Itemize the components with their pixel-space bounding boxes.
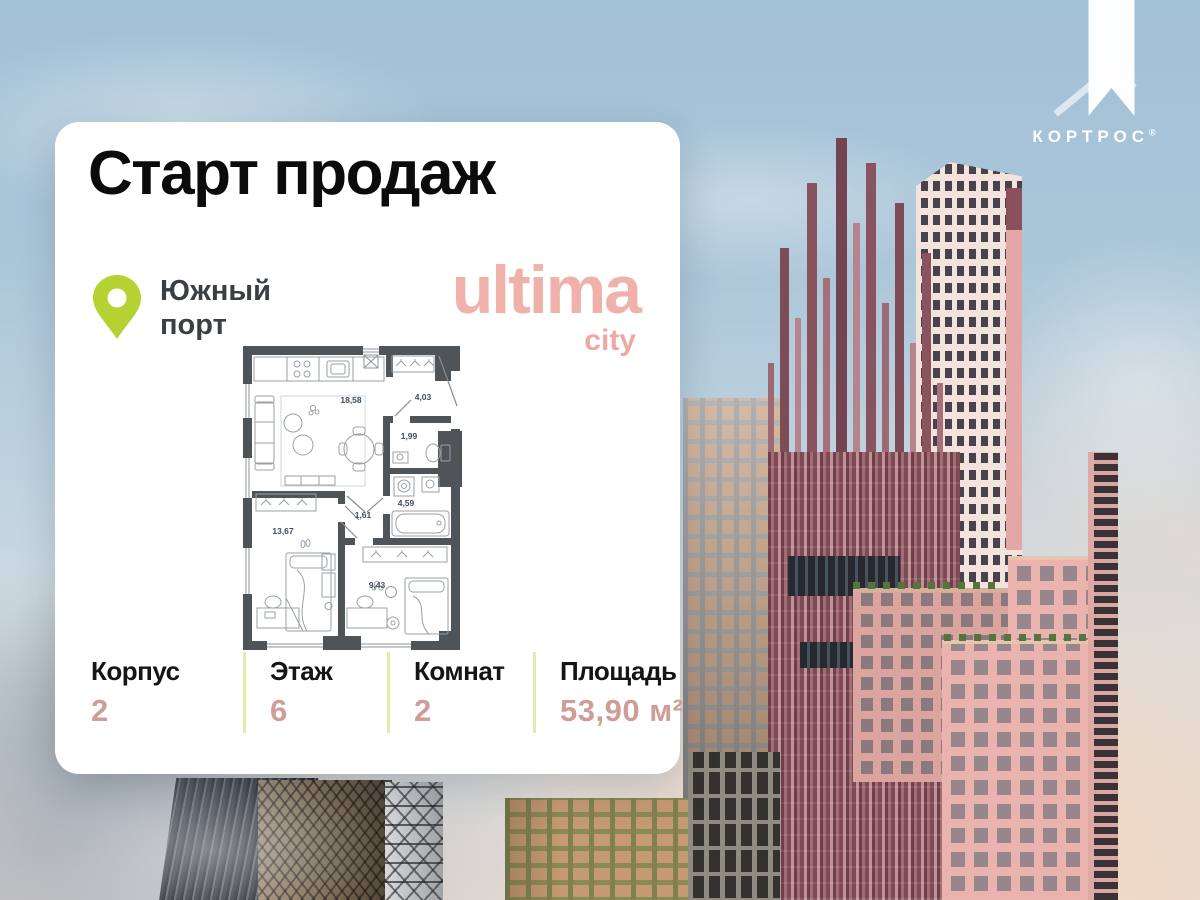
terrace-greenery bbox=[853, 582, 1003, 589]
kortros-house-icon bbox=[1036, 0, 1152, 122]
area-wc: 1,99 bbox=[401, 431, 418, 441]
poster: КОРТРОС® Старт продаж Южный порт ultima … bbox=[0, 0, 1200, 900]
stat-area: Площадь 53,90 м² bbox=[533, 652, 713, 733]
project-name: ultima bbox=[452, 256, 640, 324]
stat-value: 2 bbox=[414, 693, 533, 729]
kortros-wordmark: КОРТРОС® bbox=[1032, 127, 1155, 147]
building-fin-crown bbox=[768, 138, 968, 483]
stat-value: 2 bbox=[91, 693, 243, 729]
stat-value: 6 bbox=[270, 693, 387, 729]
area-hallway: 4,03 bbox=[415, 392, 432, 402]
stat-floor: Этаж 6 bbox=[243, 652, 387, 733]
project-logo: ultima city bbox=[452, 256, 640, 356]
area-bedroom2: 9,43 bbox=[369, 580, 386, 590]
stat-building: Корпус 2 bbox=[91, 652, 243, 733]
apartment-stats: Корпус 2 Этаж 6 Комнат 2 Площадь 53,90 м… bbox=[91, 652, 713, 733]
area-living: 18,58 bbox=[340, 395, 362, 405]
stat-label: Комнат bbox=[414, 656, 533, 687]
area-corridor: 1,61 bbox=[355, 510, 372, 520]
location-name: Южный порт bbox=[160, 274, 271, 342]
area-bathroom: 4,59 bbox=[398, 498, 415, 508]
offer-card: Старт продаж Южный порт ultima city bbox=[55, 122, 680, 774]
kortros-logo: КОРТРОС® bbox=[1036, 0, 1152, 147]
floorplan: 18,58 4,03 1,99 4,59 1,61 13,67 9,43 bbox=[243, 346, 473, 652]
stat-rooms: Комнат 2 bbox=[387, 652, 533, 733]
stat-label: Площадь bbox=[560, 656, 713, 687]
terrace-greenery bbox=[944, 634, 1112, 641]
building-olive-grid bbox=[505, 798, 691, 900]
building-arched-windows bbox=[688, 752, 780, 900]
stat-value: 53,90 м² bbox=[560, 693, 713, 729]
building-pink-block bbox=[942, 640, 1118, 900]
stat-label: Корпус bbox=[91, 656, 243, 687]
location-pin-icon bbox=[91, 274, 143, 340]
page-title: Старт продаж bbox=[88, 138, 494, 209]
building-window-column bbox=[1094, 452, 1118, 900]
project-subname: city bbox=[452, 326, 636, 356]
location-block: Южный порт bbox=[91, 274, 271, 342]
area-bedroom1: 13,67 bbox=[272, 526, 294, 536]
stat-label: Этаж bbox=[270, 656, 387, 687]
building-xbrace-tower bbox=[385, 782, 443, 900]
building-pink-pillar bbox=[1006, 188, 1022, 550]
